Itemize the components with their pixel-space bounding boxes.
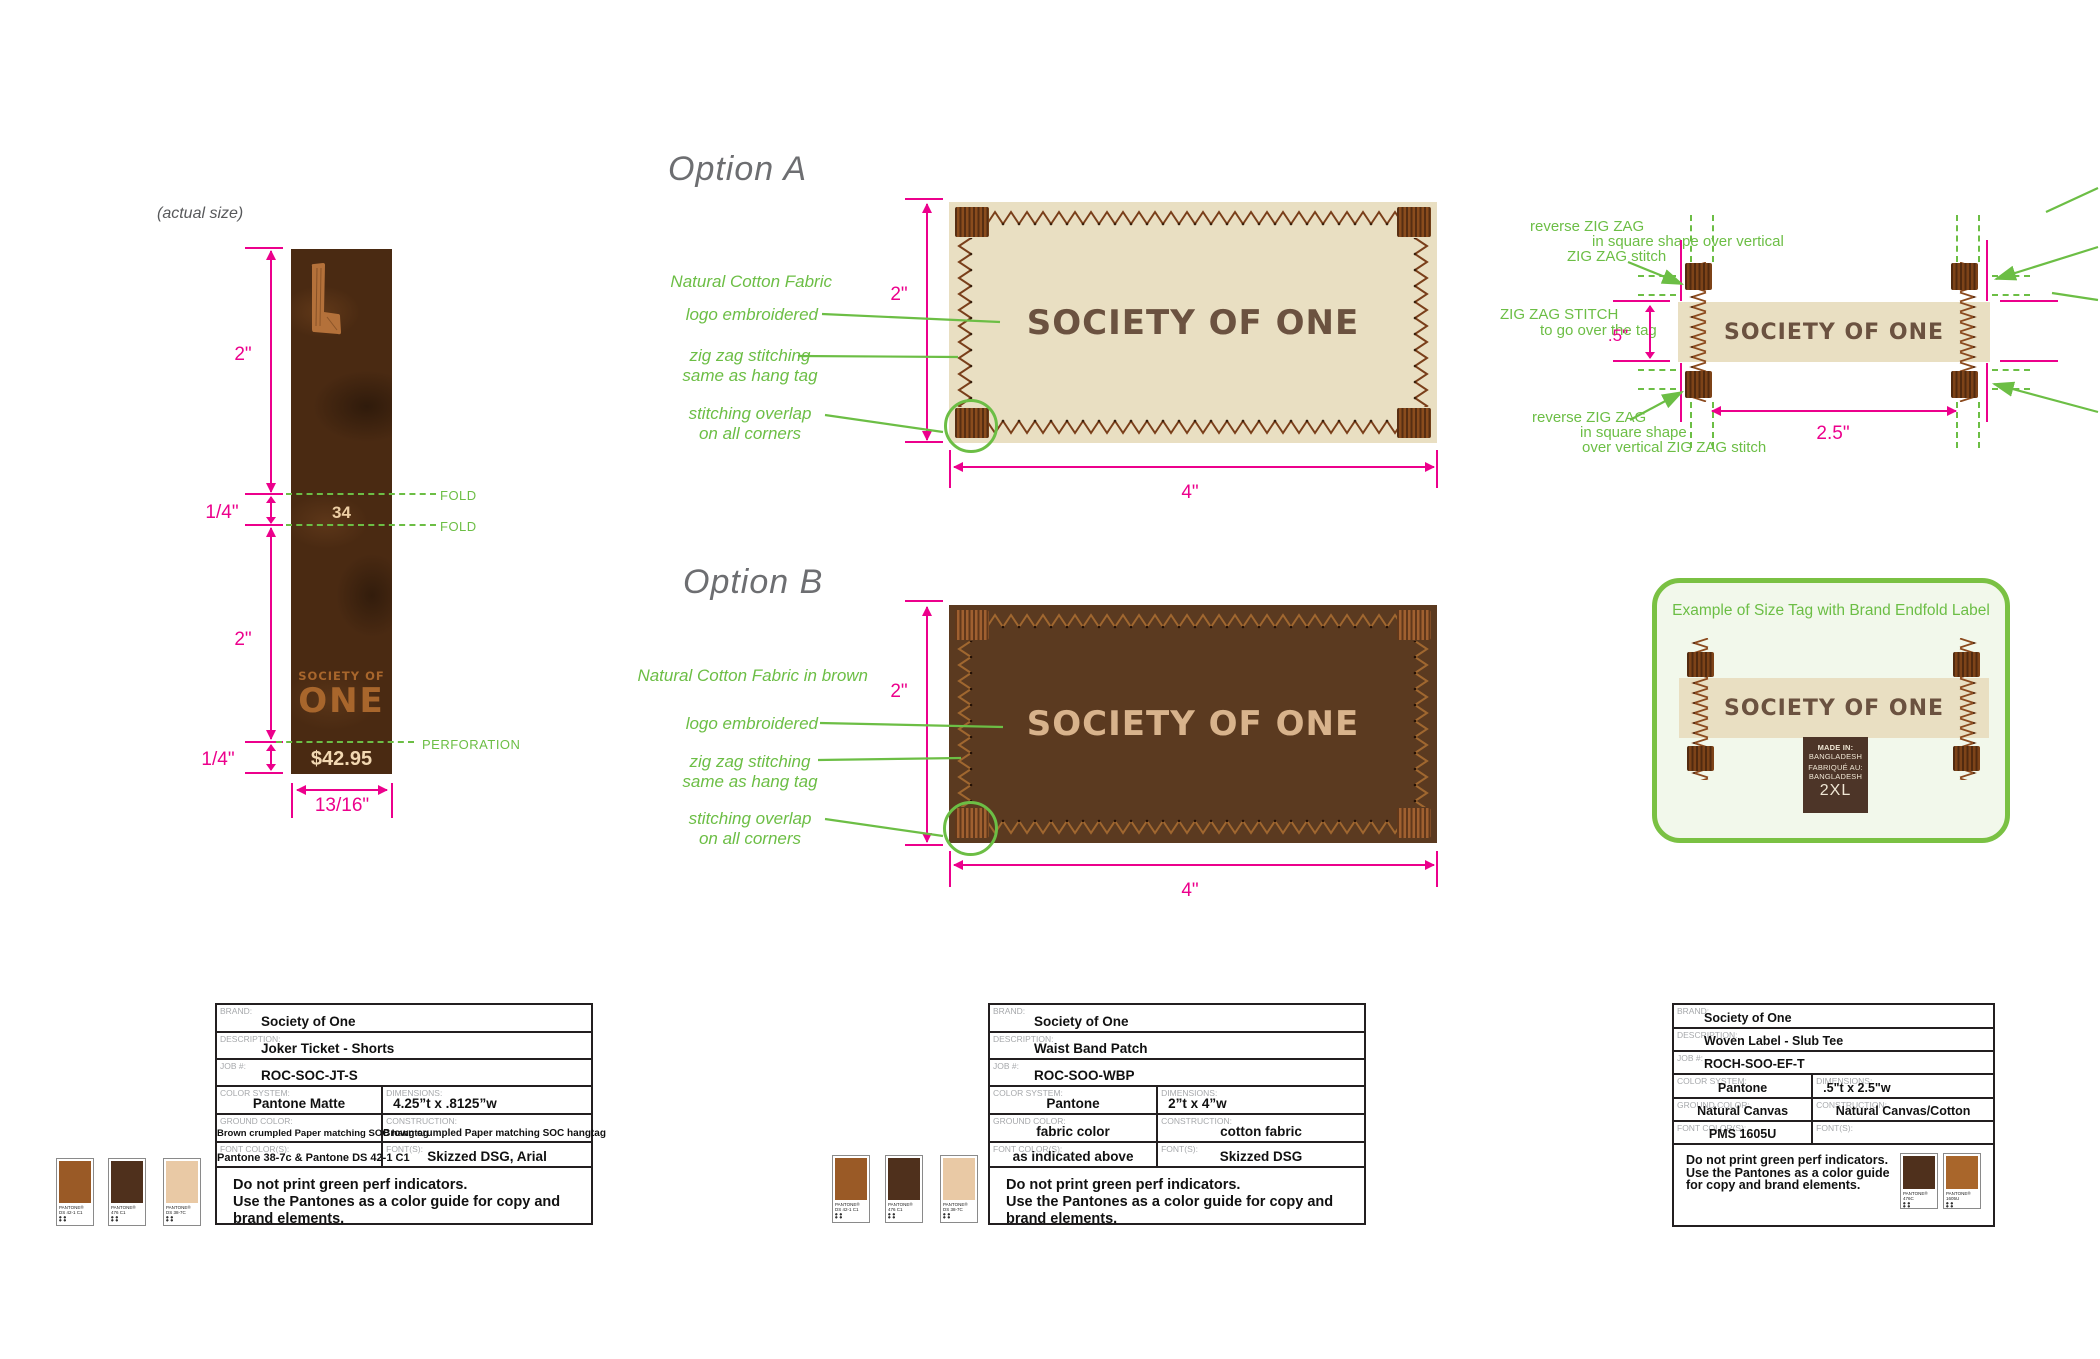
guide-line — [1690, 215, 1692, 262]
dim-label: 1/4" — [196, 749, 240, 771]
table-row: COLOR SYSTEM:Pantone DIMENSIONS:2”t x 4”… — [990, 1087, 1364, 1115]
table-row: GROUND COLOR:Brown crumpled Paper matchi… — [217, 1115, 591, 1143]
dim-label: 2" — [228, 629, 258, 651]
dim-tick — [245, 247, 283, 249]
brand-logo-text: SOCIETY OF ONE — [1724, 696, 1944, 721]
pantone-swatch: PANTONE® DS 38-7C — [940, 1155, 978, 1223]
perforation-line — [276, 741, 414, 743]
hangtag-logo-mark-icon — [307, 262, 343, 342]
leader-line — [2046, 188, 2098, 212]
spec-table-hangtag: BRAND: Society of One DESCRIPTION: Joker… — [215, 1003, 593, 1225]
guide-line — [1638, 369, 1676, 371]
leader-line — [2052, 293, 2098, 300]
detail-annotation-top: ZIG ZAG stitch — [1567, 248, 1666, 265]
actual-size-note: (actual size) — [157, 205, 243, 223]
dim-tick — [1613, 360, 1670, 362]
dim-tick — [245, 772, 283, 774]
table-row: BRAND: Society of One — [217, 1005, 591, 1033]
pantone-code: DS 42-1 C1 — [59, 1210, 91, 1215]
reverse-zigzag-patch — [1951, 371, 1978, 398]
pantone-code: DS 38-7C — [166, 1210, 198, 1215]
table-note: Do not print green perf indicators. Use … — [217, 1168, 591, 1227]
annotation-stitch-b: zig zag stitching same as hang tag — [658, 752, 842, 792]
hangtag-price: $42.95 — [291, 748, 392, 771]
size-tag-text: BANGLADESH — [1803, 753, 1868, 762]
option-a-label: SOCIETY OF ONE — [949, 202, 1437, 443]
field-value: ROCH-SOO-EF-T — [1704, 1057, 1993, 1071]
dim-label: .5" — [1598, 326, 1638, 346]
brand-logo-text: SOCIETY OF ONE — [1724, 320, 1944, 345]
pantone-code: DS 38-7C — [943, 1207, 975, 1212]
pantone-dots-icon — [888, 1213, 897, 1219]
guide-line — [1690, 402, 1692, 448]
pantone-color-chip — [1903, 1156, 1935, 1189]
annotation-fabric-b: Natural Cotton Fabric in brown — [634, 666, 868, 686]
size-tag-size: 2XL — [1803, 787, 1868, 796]
field-label: JOB #: — [220, 1061, 246, 1071]
pantone-swatch: PANTONE® DS 42-1 C1 — [56, 1158, 94, 1226]
option-b-label: SOCIETY OF ONE — [949, 605, 1437, 843]
pantone-swatch: PANTONE® 476C — [1900, 1153, 1938, 1209]
field-label: JOB #: — [993, 1061, 1019, 1071]
brand-logo-text: SOCIETY OF ONE — [949, 605, 1437, 843]
field-value: Woven Label - Slub Tee — [1704, 1034, 1993, 1048]
hangtag-brand-line2: ONE — [291, 681, 392, 721]
field-value: .5"t x 2.5"w — [1823, 1081, 1993, 1095]
annotation-fabric-a: Natural Cotton Fabric — [640, 272, 832, 292]
field-value: PMS 1605U — [1674, 1127, 1811, 1141]
dim-label: 2" — [228, 344, 258, 366]
perforation-label: PERFORATION — [422, 737, 520, 752]
guide-line — [1992, 275, 2030, 277]
pantone-dots-icon — [166, 1216, 175, 1222]
annotation-logo-a: logo embroidered — [656, 305, 818, 325]
dim-label: 2" — [884, 681, 914, 703]
guide-line — [1992, 294, 2030, 296]
table-note: Do not print green perf indicators. Use … — [990, 1168, 1364, 1227]
option-b-heading: Option B — [683, 563, 823, 602]
table-row: JOB #: ROC-SOO-WBP — [990, 1060, 1364, 1087]
pantone-code: 476 C1 — [111, 1210, 143, 1215]
artwork-spec-sheet: (actual size) 34 SOCIETY OF ONE $42.95 2… — [0, 0, 2100, 1359]
guide-line — [1992, 369, 2030, 371]
field-label: JOB #: — [1677, 1053, 1703, 1063]
pantone-color-chip — [888, 1158, 920, 1200]
detail-annotation-left: ZIG ZAG STITCH — [1500, 306, 1618, 323]
dim-label: 2.5" — [1803, 423, 1863, 445]
field-value: Society of One — [1704, 1011, 1993, 1025]
fold-line — [286, 524, 436, 526]
option-a-heading: Option A — [668, 150, 807, 189]
pantone-code: 476C — [1903, 1196, 1935, 1201]
pantone-dots-icon — [59, 1216, 68, 1222]
field-value: Brown crumpled Paper matching SOC hangta… — [383, 1128, 591, 1139]
dim-tick — [905, 844, 943, 846]
pantone-swatch: PANTONE® 476 C1 — [108, 1158, 146, 1226]
dim-arrow — [270, 528, 272, 739]
pantone-dots-icon — [943, 1213, 952, 1219]
pantone-color-chip — [943, 1158, 975, 1200]
reverse-zigzag-patch — [1953, 746, 1980, 771]
pantone-color-chip — [166, 1161, 198, 1203]
field-value: Society of One — [261, 1014, 591, 1029]
table-row: GROUND COLOR:fabric color CONSTRUCTION:c… — [990, 1115, 1364, 1143]
annotation-stitch-a: zig zag stitching same as hang tag — [658, 346, 842, 386]
spec-table-waistband: BRAND: Society of One DESCRIPTION: Waist… — [988, 1003, 1366, 1225]
reverse-zigzag-patch — [1687, 652, 1714, 677]
field-value: Pantone 38-7c & Pantone DS 42-1 C1 — [217, 1152, 381, 1164]
pantone-color-chip — [59, 1161, 91, 1203]
reverse-zigzag-patch — [1953, 652, 1980, 677]
stitch-overlap-indicator — [944, 399, 998, 453]
table-row: JOB #: ROCH-SOO-EF-T — [1674, 1052, 1993, 1075]
field-value: Society of One — [1034, 1014, 1364, 1029]
detail-label-strip: SOCIETY OF ONE — [1678, 302, 1990, 362]
dim-tick — [1680, 363, 1682, 422]
dim-arrow — [270, 251, 272, 492]
dim-tick — [905, 441, 943, 443]
table-row: DESCRIPTION: Joker Ticket - Shorts — [217, 1033, 591, 1060]
fold-line — [286, 493, 436, 495]
dim-tick — [949, 450, 951, 488]
field-value: Pantone — [990, 1096, 1156, 1111]
field-label: FONT(S): — [1816, 1123, 1853, 1133]
reverse-zigzag-patch — [1951, 263, 1978, 290]
dim-label: 4" — [1175, 880, 1205, 902]
dim-arrow — [270, 497, 272, 523]
table-row: BRAND: Society of One — [990, 1005, 1364, 1033]
dim-arrow — [270, 745, 272, 770]
field-value: fabric color — [990, 1124, 1156, 1139]
table-row: COLOR SYSTEM:Pantone DIMENSIONS:.5"t x 2… — [1674, 1075, 1993, 1099]
table-row: FONT COLOR(S):Pantone 38-7c & Pantone DS… — [217, 1143, 591, 1168]
pantone-code: 476 C1 — [888, 1207, 920, 1212]
dim-arrow — [954, 864, 1434, 866]
field-value: Joker Ticket - Shorts — [261, 1041, 591, 1056]
dim-tick — [245, 524, 283, 526]
dim-tick — [291, 783, 293, 818]
field-value: Waist Band Patch — [1034, 1041, 1364, 1056]
field-value: 2”t x 4”w — [1168, 1096, 1364, 1111]
guide-line — [1638, 294, 1676, 296]
table-row: JOB #: ROC-SOC-JT-S — [217, 1060, 591, 1087]
reverse-zigzag-patch — [1687, 746, 1714, 771]
dim-tick — [2000, 300, 2058, 302]
fold-label: FOLD — [440, 519, 477, 534]
dim-tick — [905, 600, 943, 602]
guide-line — [1978, 402, 1980, 448]
annotation-logo-b: logo embroidered — [656, 714, 818, 734]
field-label: GROUND COLOR: — [220, 1116, 293, 1126]
field-value: Skizzed DSG, Arial — [383, 1149, 591, 1164]
detail-annotation-bottom: over vertical ZIG ZAG stitch — [1582, 439, 1766, 456]
field-value: Pantone — [1674, 1081, 1811, 1095]
reverse-zigzag-patch — [1685, 263, 1712, 290]
field-label: BRAND: — [993, 1006, 1025, 1016]
guide-line — [1638, 388, 1676, 390]
dim-arrow — [297, 789, 387, 791]
pantone-color-chip — [111, 1161, 143, 1203]
dim-arrow — [1649, 306, 1651, 358]
dim-label: 2" — [884, 284, 914, 306]
guide-line — [1978, 215, 1980, 262]
example-label-strip: SOCIETY OF ONE — [1679, 678, 1989, 738]
table-row: GROUND COLOR:Natural Canvas CONSTRUCTION… — [1674, 1099, 1993, 1122]
dim-label: 13/16" — [306, 795, 378, 817]
dim-tick — [1986, 240, 1988, 301]
field-value: as indicated above — [990, 1149, 1156, 1164]
dim-label: 1/4" — [200, 502, 244, 524]
field-value: ROC-SOC-JT-S — [261, 1068, 591, 1083]
dim-tick — [1436, 851, 1438, 887]
field-value: Brown crumpled Paper matching SOC hangta… — [217, 1128, 381, 1139]
table-row: DESCRIPTION: Woven Label - Slub Tee — [1674, 1029, 1993, 1052]
dim-tick — [391, 783, 393, 818]
pantone-swatch: PANTONE® DS 38-7C — [163, 1158, 201, 1226]
dim-arrow — [926, 204, 928, 440]
annotation-overlap-a: stitching overlap on all corners — [658, 404, 842, 444]
field-label: BRAND: — [220, 1006, 252, 1016]
pantone-dots-icon — [1946, 1202, 1955, 1208]
pantone-color-chip — [1946, 1156, 1978, 1189]
pantone-swatch: PANTONE® 1605U — [1943, 1153, 1981, 1209]
field-value: cotton fabric — [1158, 1124, 1364, 1139]
pantone-dots-icon — [111, 1216, 120, 1222]
pantone-dots-icon — [1903, 1202, 1912, 1208]
table-row: DESCRIPTION: Waist Band Patch — [990, 1033, 1364, 1060]
brand-logo-text: SOCIETY OF ONE — [949, 202, 1437, 443]
pantone-swatch: PANTONE® 476 C1 — [885, 1155, 923, 1223]
dim-label: 4" — [1175, 482, 1205, 504]
guide-line — [1956, 215, 1958, 262]
pantone-code: DS 42-1 C1 — [835, 1207, 867, 1212]
dim-arrow — [1712, 410, 1956, 412]
dim-tick — [1986, 363, 1988, 422]
stitch-overlap-indicator — [943, 801, 998, 856]
table-row: COLOR SYSTEM:Pantone Matte DIMENSIONS:4.… — [217, 1087, 591, 1115]
pantone-code: 1605U — [1946, 1196, 1978, 1201]
table-row: FONT COLOR(S):PMS 1605U FONT(S): — [1674, 1122, 1993, 1145]
field-value: ROC-SOO-WBP — [1034, 1068, 1364, 1083]
dim-tick — [1613, 300, 1670, 302]
hangtag-size-number: 34 — [291, 503, 392, 523]
pointer-arrow — [1628, 262, 1682, 284]
size-tag: MADE IN: BANGLADESH FABRIQUÉ AU: BANGLAD… — [1803, 737, 1868, 813]
pantone-color-chip — [835, 1158, 867, 1200]
annotation-overlap-b: stitching overlap on all corners — [658, 809, 842, 849]
table-row: FONT COLOR(S):as indicated above FONT(S)… — [990, 1143, 1364, 1168]
dim-arrow — [954, 466, 1434, 468]
dim-tick — [1680, 240, 1682, 301]
table-row: BRAND: Society of One — [1674, 1005, 1993, 1029]
size-tag-text: BANGLADESH — [1803, 773, 1868, 782]
dim-tick — [2000, 360, 2058, 362]
hangtag: 34 SOCIETY OF ONE $42.95 — [291, 249, 392, 774]
field-label: CONSTRUCTION: — [386, 1116, 457, 1126]
field-value: 4.25”t x .8125”w — [393, 1096, 591, 1111]
field-value: Natural Canvas — [1674, 1104, 1811, 1118]
guide-line — [1638, 275, 1676, 277]
dim-tick — [245, 493, 283, 495]
dim-tick — [905, 198, 943, 200]
field-value: Pantone Matte — [217, 1096, 381, 1111]
dim-tick — [1436, 450, 1438, 488]
dim-tick — [949, 851, 951, 887]
guide-line — [1992, 388, 2030, 390]
field-value: Natural Canvas/Cotton — [1813, 1104, 1993, 1118]
field-value: Skizzed DSG — [1158, 1149, 1364, 1164]
reverse-zigzag-patch — [1685, 371, 1712, 398]
guide-line — [1712, 215, 1714, 262]
pantone-dots-icon — [835, 1213, 844, 1219]
fold-label: FOLD — [440, 488, 477, 503]
dim-arrow — [926, 607, 928, 842]
pantone-swatch: PANTONE® DS 42-1 C1 — [832, 1155, 870, 1223]
example-box-title: Example of Size Tag with Brand Endfold L… — [1662, 602, 2000, 620]
